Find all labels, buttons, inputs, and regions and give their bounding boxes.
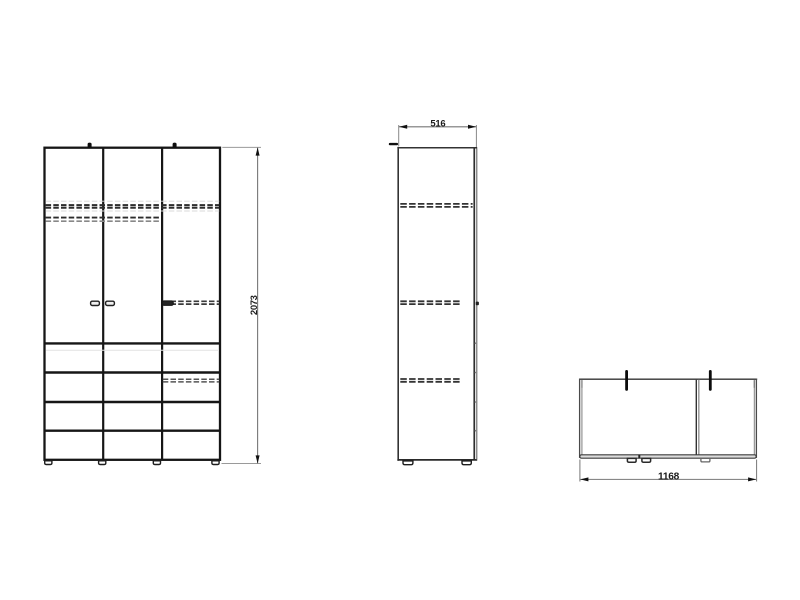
svg-text:516: 516 <box>430 119 445 130</box>
svg-text:1168: 1168 <box>658 471 680 482</box>
svg-text:2073: 2073 <box>249 295 260 315</box>
